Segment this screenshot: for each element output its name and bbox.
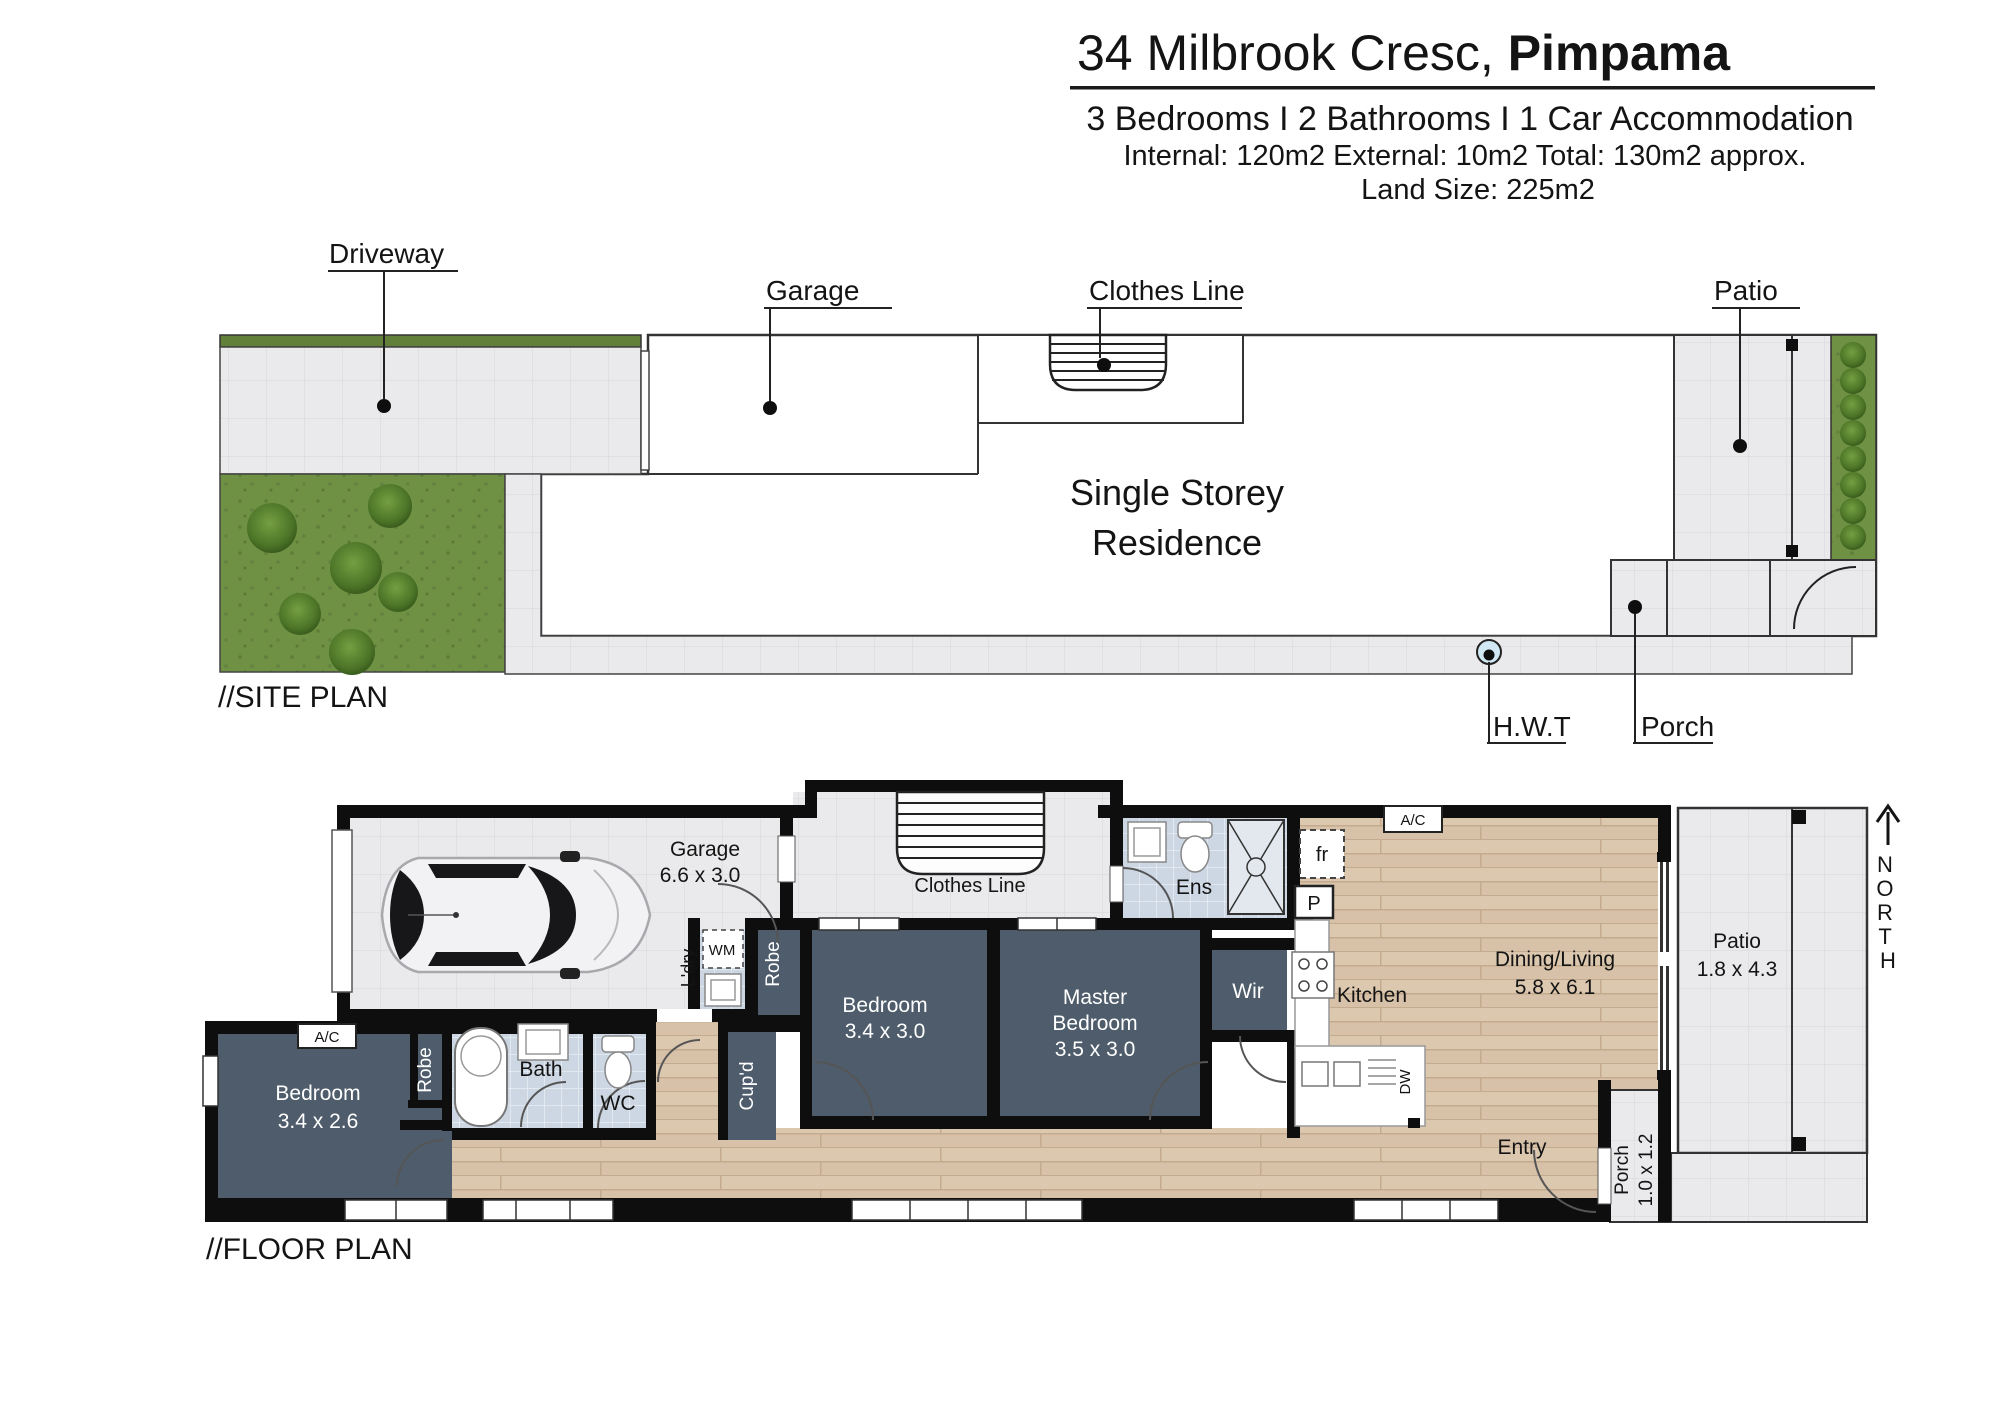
- header-areas: Internal: 120m2 External: 10m2 Total: 13…: [1124, 140, 1807, 172]
- master-label: Master Bedroom 3.5 x 3.0: [1052, 986, 1137, 1061]
- car-top-view-icon: [382, 851, 650, 979]
- callout-patio: Patio: [1714, 275, 1778, 306]
- bedroom2-label: Bedroom: [842, 994, 927, 1017]
- ens-label: Ens: [1176, 876, 1212, 899]
- site-patio-post-top: [1786, 339, 1798, 351]
- floor-plan-label: //FLOOR PLAN: [206, 1233, 413, 1266]
- garage-door: [332, 830, 352, 992]
- pantry-label: P: [1307, 893, 1320, 915]
- title-underline: [1070, 86, 1875, 90]
- dishwasher-label: DW: [1397, 1069, 1414, 1095]
- site-garage-door: [641, 351, 649, 470]
- kitchen-label: Kitchen: [1337, 984, 1407, 1007]
- floor-plan: Garage 6.6 x 3.0 Clothes Line L'dry WM R…: [203, 780, 1900, 1266]
- header-land-size: Land Size: 225m2: [1361, 174, 1595, 206]
- site-porch-strip: [1611, 560, 1876, 636]
- callout-porch: Porch: [1641, 711, 1714, 742]
- entry-label: Entry: [1497, 1136, 1547, 1159]
- svg-text:Master: Master: [1063, 986, 1127, 1009]
- robe-bed3-label: Robe: [415, 1047, 436, 1092]
- wc-label: WC: [601, 1092, 636, 1115]
- fridge-label: fr: [1316, 844, 1329, 866]
- clothesline-label-fp: Clothes Line: [914, 875, 1025, 897]
- svg-text:Porch: Porch: [1612, 1145, 1633, 1195]
- site-patio-post-bottom: [1786, 545, 1798, 557]
- garage-dims: 6.6 x 3.0: [660, 864, 741, 887]
- dining-window: [1354, 1200, 1498, 1220]
- dining-label: Dining/Living: [1495, 948, 1615, 971]
- bedroom3-label: Bedroom: [275, 1082, 360, 1105]
- svg-text:3.5 x 3.0: 3.5 x 3.0: [1055, 1038, 1136, 1061]
- hall-window-2: [852, 1200, 1082, 1220]
- residence-label-line1: Single Storey: [1070, 472, 1284, 513]
- callout-clothes-line: Clothes Line: [1089, 275, 1245, 306]
- bath-label: Bath: [519, 1058, 562, 1081]
- callout-driveway: Driveway: [329, 238, 444, 269]
- ac-label-bed3: A/C: [314, 1029, 339, 1046]
- ens-door-gap: [1110, 866, 1123, 902]
- garage-rear-door-gap: [778, 836, 795, 882]
- site-plan-label: //SITE PLAN: [218, 681, 388, 714]
- page-title: 34 Milbrook Cresc, Pimpama: [1077, 25, 1731, 81]
- stove: [1292, 952, 1334, 998]
- svg-text:Bedroom: Bedroom: [1052, 1012, 1137, 1035]
- wc-toilet: [602, 1036, 634, 1088]
- floorplan-page: 34 Milbrook Cresc, Pimpama 3 Bedrooms I …: [0, 0, 2000, 1414]
- bedroom3-side-window: [203, 1056, 218, 1106]
- north-arrow: N O R T H: [1876, 806, 1899, 973]
- bedroom2-dims: 3.4 x 3.0: [845, 1020, 926, 1043]
- wm-label: WM: [709, 942, 736, 959]
- callout-garage: Garage: [766, 275, 859, 306]
- wir-label: Wir: [1232, 980, 1263, 1003]
- patio-slider: [1657, 852, 1671, 1080]
- hwt-unit: [1477, 640, 1501, 664]
- hall-passage-floor: [656, 1022, 718, 1132]
- patio-post-bottom: [1792, 1137, 1806, 1151]
- residence-label-line2: Residence: [1092, 522, 1262, 563]
- ens-shower: [1228, 820, 1284, 914]
- patio-post-top: [1792, 810, 1806, 824]
- driveway-area: [220, 347, 641, 474]
- patio-walkway: [1671, 1153, 1867, 1222]
- hedge-strip: [220, 335, 641, 347]
- dining-dims: 5.8 x 6.1: [1515, 976, 1596, 999]
- header-specs: 3 Bedrooms I 2 Bathrooms I 1 Car Accommo…: [1086, 100, 1853, 138]
- north-label: N O R T H: [1876, 852, 1899, 973]
- entry-door-gap: [1598, 1148, 1611, 1204]
- patio-label-fp: Patio: [1713, 930, 1761, 953]
- site-plan: Single Storey Residence Driveway Garage …: [218, 238, 1876, 743]
- hall-window-1: [483, 1200, 613, 1220]
- garage-label: Garage: [670, 838, 740, 861]
- ens-toilet: [1178, 822, 1212, 872]
- laundry-label: L'dry: [678, 949, 698, 987]
- clothesline-unit-fp: [897, 792, 1044, 874]
- robe-hall-label: Robe: [763, 941, 784, 986]
- svg-text:1.0 x 1.2: 1.0 x 1.2: [1636, 1134, 1657, 1207]
- cupboard-label: Cup'd: [737, 1061, 758, 1110]
- ac-label-dining: A/C: [1400, 812, 1425, 829]
- callout-hwt: H.W.T: [1493, 711, 1571, 742]
- bathtub: [455, 1028, 507, 1126]
- bedroom3-dims: 3.4 x 2.6: [278, 1110, 359, 1133]
- header: 34 Milbrook Cresc, Pimpama 3 Bedrooms I …: [1070, 25, 1875, 206]
- hall-floor2: [812, 1129, 1300, 1198]
- patio-dims-fp: 1.8 x 4.3: [1697, 958, 1778, 981]
